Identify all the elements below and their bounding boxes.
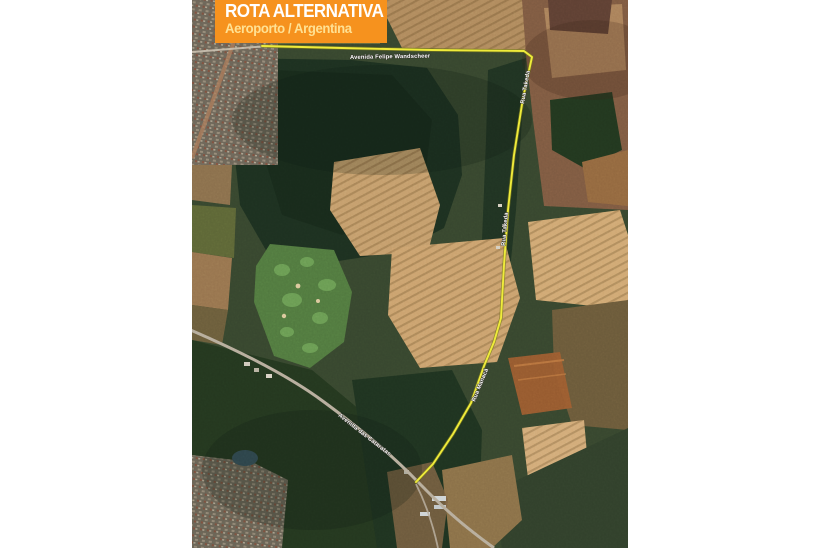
- grain-overlay: [192, 0, 628, 548]
- banner-title: ROTA ALTERNATIVA: [225, 2, 379, 21]
- satellite-map: Avenida Felipe Wandscheer Rua Takeda Rua…: [192, 0, 628, 548]
- route-banner: ROTA ALTERNATIVA Aeroporto / Argentina: [215, 0, 387, 43]
- banner-subtitle: Aeroporto / Argentina: [225, 21, 382, 36]
- satellite-map-image: Avenida Felipe Wandscheer Rua Takeda Rua…: [192, 0, 628, 548]
- page: Avenida Felipe Wandscheer Rua Takeda Rua…: [0, 0, 822, 548]
